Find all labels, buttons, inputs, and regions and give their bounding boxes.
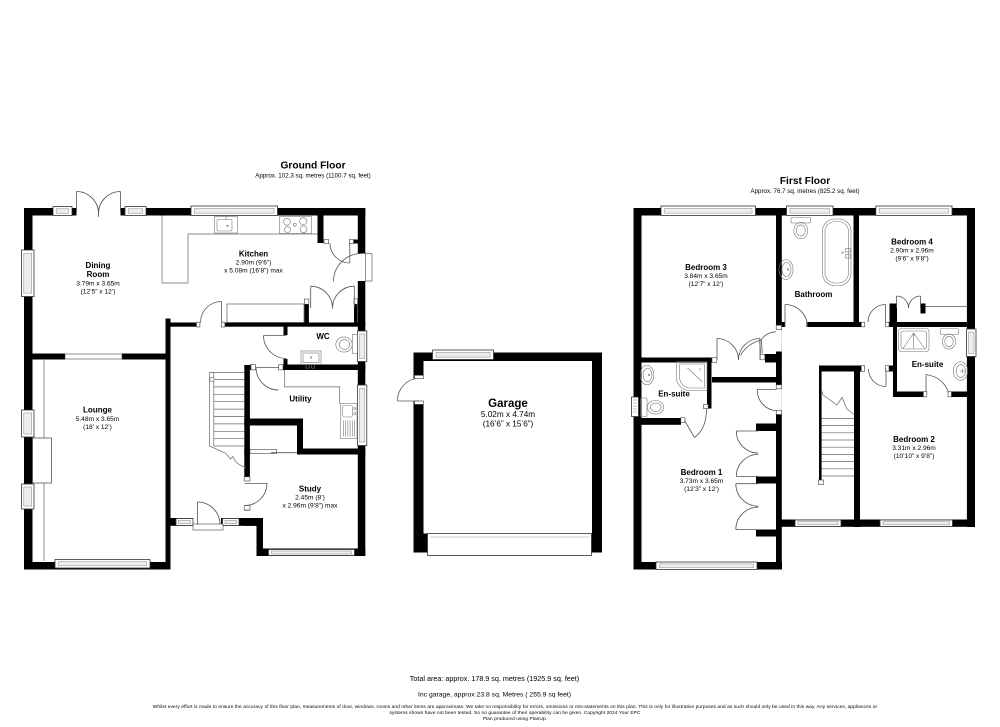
svg-text:(18’ x 12’): (18’ x 12’) [83,424,112,431]
svg-text:WC: WC [316,332,330,341]
svg-text:(16’6” x 15’6”): (16’6” x 15’6”) [483,420,534,429]
svg-text:Plan produced using PlanUp.: Plan produced using PlanUp. [483,716,547,722]
svg-text:Study: Study [299,485,322,494]
svg-text:x 5.08m (16’8”) max: x 5.08m (16’8”) max [224,268,283,275]
svg-text:Room: Room [87,270,110,279]
svg-text:Dining: Dining [86,261,111,270]
svg-text:(12’7” x 12’): (12’7” x 12’) [689,281,724,288]
svg-text:Approx. 102.3 sq. metres (1100: Approx. 102.3 sq. metres (1100.7 sq. fee… [255,173,370,180]
svg-text:En-suite: En-suite [912,360,944,369]
svg-text:En-suite: En-suite [658,390,690,399]
svg-text:Lounge: Lounge [83,406,112,415]
svg-text:Approx. 76.7 sq. metres (825.2: Approx. 76.7 sq. metres (825.2 sq. feet) [750,188,859,195]
svg-text:2.90m (9’6”): 2.90m (9’6”) [236,260,272,267]
svg-text:Bedroom 4: Bedroom 4 [891,238,933,247]
svg-text:Bathroom: Bathroom [795,290,833,299]
svg-text:5.02m x 4.74m: 5.02m x 4.74m [481,410,535,419]
svg-text:Bedroom 3: Bedroom 3 [685,263,727,272]
svg-text:Ground Floor: Ground Floor [280,161,345,172]
svg-text:(9’6” x 9’8”): (9’6” x 9’8”) [895,256,928,263]
svg-text:3.31m x 2.96m: 3.31m x 2.96m [892,445,936,452]
svg-text:3.79m x 3.65m: 3.79m x 3.65m [76,281,120,288]
svg-text:Bedroom 2: Bedroom 2 [893,435,935,444]
svg-text:(12’5” x 12’): (12’5” x 12’) [81,289,116,296]
svg-text:First Floor: First Floor [780,176,830,187]
svg-text:3.84m x 3.65m: 3.84m x 3.65m [684,273,728,280]
svg-text:Bedroom 1: Bedroom 1 [681,468,723,477]
svg-text:5.48m x 3.65m: 5.48m x 3.65m [76,416,120,423]
svg-text:2.90m x 2.96m: 2.90m x 2.96m [890,248,934,255]
svg-text:(12’3” x 12’): (12’3” x 12’) [684,486,719,493]
svg-text:systems shown have not been te: systems shown have not been tested. So n… [390,710,641,716]
svg-text:(10’10” x 9’8”): (10’10” x 9’8”) [894,453,935,460]
svg-text:Inc garage, approx 23.8 sq. Me: Inc garage, approx 23.8 sq. Metres ( 255… [418,692,571,699]
svg-text:x 2.96m (9’8”) max: x 2.96m (9’8”) max [283,503,339,510]
svg-text:Whilst every effort is made to: Whilst every effort is made to ensure th… [153,704,878,710]
svg-text:3.73m x 3.65m: 3.73m x 3.65m [680,478,724,485]
svg-text:Utility: Utility [289,395,312,404]
svg-text:Garage: Garage [488,398,528,410]
svg-text:Kitchen: Kitchen [239,250,268,259]
svg-text:2.45m (8’): 2.45m (8’) [295,495,325,502]
svg-text:Total area: approx. 178.9 sq.: Total area: approx. 178.9 sq. metres (19… [410,674,579,683]
